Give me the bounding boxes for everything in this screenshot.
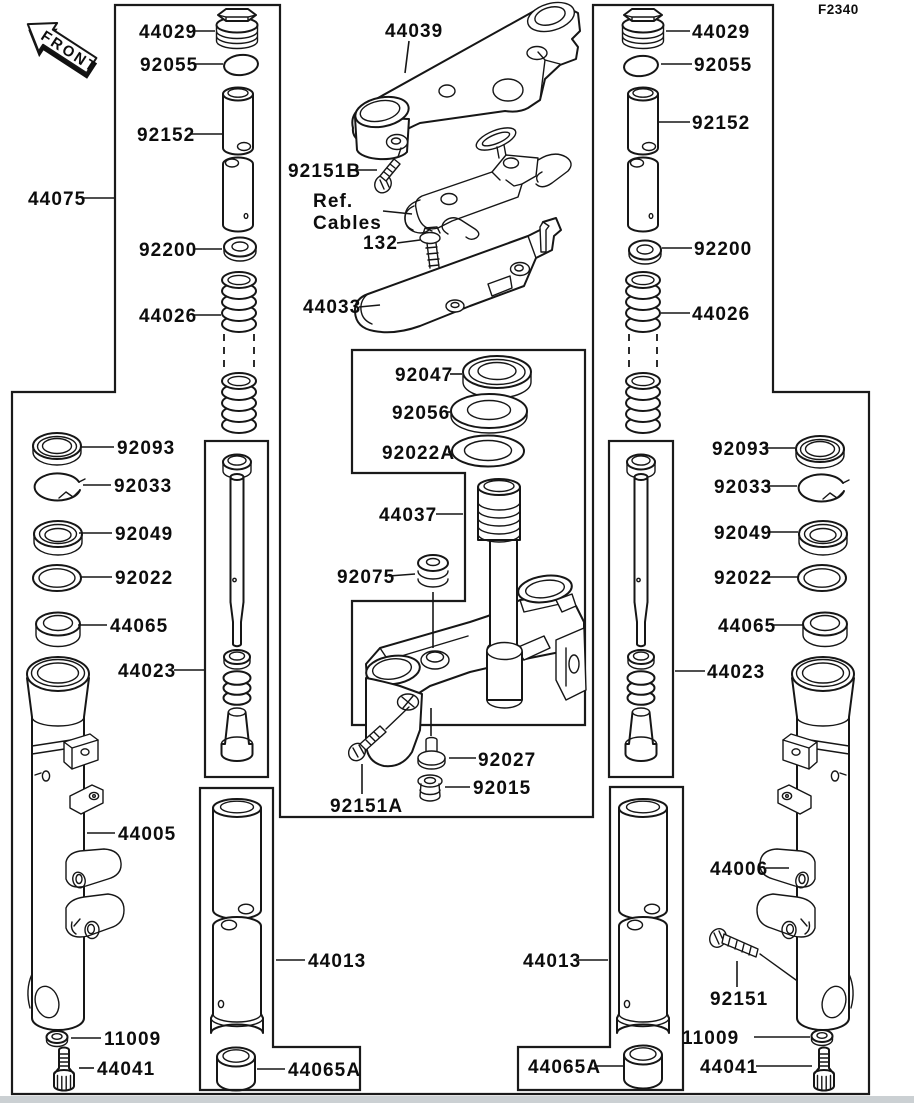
part-collar-left <box>223 88 253 232</box>
svg-text:92027: 92027 <box>478 750 536 771</box>
svg-text:44037: 44037 <box>379 505 437 526</box>
part-drain-screw-left <box>54 1048 74 1091</box>
part-inner-tube-left <box>211 799 263 1033</box>
part-dust-seal-left <box>33 433 81 465</box>
label-ref-cables: Ref. Cables <box>313 191 412 234</box>
svg-text:92022: 92022 <box>115 568 173 589</box>
outer-group-box <box>12 5 869 1094</box>
part-retaining-ring-left <box>35 473 85 500</box>
svg-text:92151B: 92151B <box>288 161 361 182</box>
svg-text:44023: 44023 <box>118 661 176 682</box>
svg-text:44041: 44041 <box>700 1057 758 1078</box>
part-washer-11009-right <box>812 1030 833 1046</box>
label-92056: 92056 <box>392 403 450 424</box>
svg-text:92151A: 92151A <box>330 796 403 817</box>
label-92022-right: 92022 <box>714 568 799 589</box>
label-44023-right: 44023 <box>675 662 765 683</box>
parts-diagram-page: FRONT F2340 <box>0 0 914 1103</box>
label-44041-left: 44041 <box>79 1059 155 1080</box>
label-92075: 92075 <box>337 567 415 588</box>
part-washer-11009-left <box>47 1031 68 1047</box>
svg-text:44033: 44033 <box>303 297 361 318</box>
part-bushing-44065a-right <box>624 1046 662 1089</box>
label-11009-left: 11009 <box>71 1029 161 1050</box>
svg-text:44026: 44026 <box>692 304 750 325</box>
label-92200-right: 92200 <box>662 239 752 260</box>
svg-text:44041: 44041 <box>97 1059 155 1080</box>
label-92033-left: 92033 <box>83 476 172 497</box>
label-92055-left: 92055 <box>140 55 223 76</box>
svg-text:132: 132 <box>363 233 398 254</box>
part-outer-tube-right <box>757 657 854 1030</box>
part-cylinder-unit-right <box>626 455 657 762</box>
svg-text:92093: 92093 <box>117 438 175 459</box>
svg-text:92022A: 92022A <box>382 443 455 464</box>
part-washer-92200-left <box>224 238 256 262</box>
svg-text:44065: 44065 <box>718 616 776 637</box>
sheet-code: F2340 <box>818 2 859 17</box>
label-44023-left: 44023 <box>118 661 204 682</box>
svg-text:92056: 92056 <box>392 403 450 424</box>
part-collar-right <box>628 88 658 232</box>
label-92151: 92151 <box>710 961 768 1010</box>
svg-text:Ref.: Ref. <box>313 191 353 212</box>
svg-text:92047: 92047 <box>395 365 453 386</box>
label-44065-right: 44065 <box>718 616 803 637</box>
group-outline-boxes <box>12 5 869 1094</box>
svg-text:92033: 92033 <box>114 476 172 497</box>
svg-text:92049: 92049 <box>115 524 173 545</box>
svg-text:44006: 44006 <box>710 859 768 880</box>
label-44005: 44005 <box>87 824 176 845</box>
svg-text:44026: 44026 <box>139 306 197 327</box>
svg-text:44075: 44075 <box>28 189 86 210</box>
part-top-plug-right <box>623 9 664 48</box>
label-92200-left: 92200 <box>139 240 222 261</box>
label-44039: 44039 <box>385 21 443 73</box>
part-washer-92200-right <box>629 241 661 265</box>
svg-text:44065A: 44065A <box>288 1060 361 1081</box>
svg-text:92055: 92055 <box>694 55 752 76</box>
svg-text:44065: 44065 <box>110 616 168 637</box>
label-92049-right: 92049 <box>714 523 798 544</box>
part-spring-left <box>222 272 256 433</box>
svg-text:44013: 44013 <box>308 951 366 972</box>
svg-text:92075: 92075 <box>337 567 395 588</box>
svg-text:92049: 92049 <box>714 523 772 544</box>
svg-text:92055: 92055 <box>140 55 198 76</box>
label-92022a: 92022A <box>382 443 455 464</box>
svg-text:92200: 92200 <box>694 239 752 260</box>
front-direction-arrow: FRONT <box>16 10 106 87</box>
label-44029-right: 44029 <box>666 22 750 43</box>
label-44037: 44037 <box>379 505 463 526</box>
label-11009-right: 11009 <box>682 1028 810 1049</box>
part-bushing-44065-left <box>36 613 80 647</box>
label-44041-right: 44041 <box>700 1057 812 1078</box>
part-drain-screw-right <box>814 1048 834 1091</box>
label-44026-right: 44026 <box>661 304 750 325</box>
part-cylinder-unit-left <box>222 455 253 762</box>
svg-text:11009: 11009 <box>104 1029 161 1050</box>
label-92022-left: 92022 <box>81 568 173 589</box>
part-dust-seal-right <box>796 436 844 468</box>
svg-text:44029: 44029 <box>692 22 750 43</box>
label-44075: 44075 <box>28 189 114 210</box>
part-outer-tube-left <box>27 657 124 1030</box>
label-92015: 92015 <box>445 778 531 799</box>
label-92049-left: 92049 <box>79 524 173 545</box>
svg-text:44065A: 44065A <box>528 1057 601 1078</box>
label-44065-left: 44065 <box>78 616 168 637</box>
label-92027: 92027 <box>449 750 536 771</box>
label-92047: 92047 <box>395 365 462 386</box>
label-44065a-right: 44065A <box>528 1057 623 1078</box>
label-92151a: 92151A <box>330 796 403 817</box>
svg-text:Cables: Cables <box>313 213 382 234</box>
part-oil-seal-left <box>34 521 82 555</box>
svg-text:92093: 92093 <box>712 439 770 460</box>
label-92055-right: 92055 <box>661 55 752 76</box>
part-retaining-ring-right <box>799 474 849 501</box>
svg-text:92152: 92152 <box>137 125 195 146</box>
label-92152-right: 92152 <box>659 113 750 134</box>
part-collar-92027 <box>418 708 445 769</box>
part-race-92056 <box>451 394 527 433</box>
label-44026-left: 44026 <box>139 306 221 327</box>
svg-text:92033: 92033 <box>714 477 772 498</box>
part-inner-tube-right <box>617 799 669 1033</box>
part-ring-92022-left <box>33 565 81 591</box>
svg-text:44029: 44029 <box>139 22 197 43</box>
part-bushing-44065a-left <box>217 1048 255 1091</box>
part-grommet-92015 <box>418 775 442 801</box>
svg-text:92015: 92015 <box>473 778 531 799</box>
label-92151b: 92151B <box>288 161 377 182</box>
svg-text:44013: 44013 <box>523 951 581 972</box>
label-132: 132 <box>363 233 420 254</box>
label-44013-left: 44013 <box>276 951 366 972</box>
svg-text:44005: 44005 <box>118 824 176 845</box>
part-top-plug-left <box>217 9 258 48</box>
label-92033-right: 92033 <box>714 477 797 498</box>
part-o-ring-left <box>223 53 259 76</box>
svg-text:92022: 92022 <box>714 568 772 589</box>
fork-exploded-diagram: FRONT F2340 <box>0 0 914 1103</box>
part-ring-92022-right <box>798 565 846 591</box>
label-92093-left: 92093 <box>81 438 175 459</box>
svg-text:92152: 92152 <box>692 113 750 134</box>
label-92152-left: 92152 <box>137 125 222 146</box>
svg-text:92151: 92151 <box>710 989 768 1010</box>
label-44029-left: 44029 <box>139 22 215 43</box>
label-44013-right: 44013 <box>523 951 608 972</box>
part-washer-92022a <box>452 436 524 467</box>
svg-text:92200: 92200 <box>139 240 197 261</box>
part-bearing-92047 <box>463 356 531 398</box>
label-44065a-left: 44065A <box>257 1060 361 1081</box>
part-oil-seal-right <box>799 521 847 555</box>
svg-text:44023: 44023 <box>707 662 765 683</box>
svg-text:11009: 11009 <box>682 1028 739 1049</box>
callout-labels: 44029 92055 92152 44075 92200 44026 4403… <box>28 21 812 1081</box>
label-92093-right: 92093 <box>712 439 795 460</box>
part-o-ring-right <box>623 54 659 77</box>
page-bottom-strip <box>0 1096 914 1103</box>
part-bushing-44065-right <box>803 613 847 647</box>
svg-text:44039: 44039 <box>385 21 443 42</box>
part-spring-right <box>626 272 660 433</box>
